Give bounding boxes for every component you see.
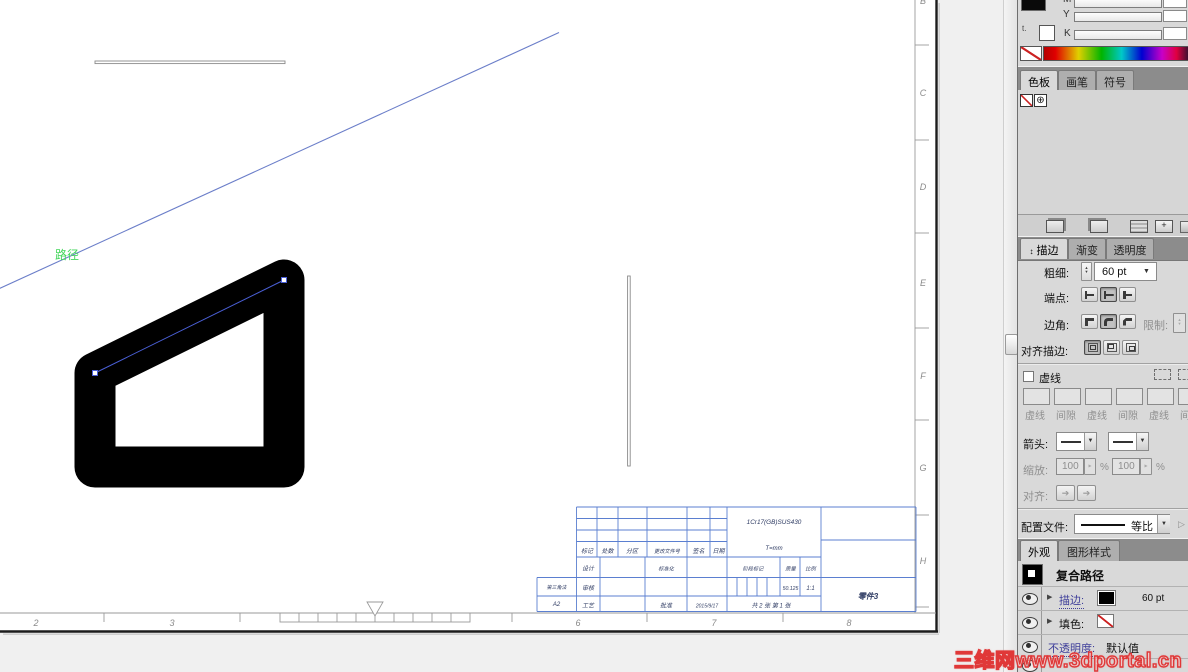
arrow-line-preview xyxy=(1061,441,1081,443)
dock-resizer-strip xyxy=(1003,0,1018,672)
tb-material: 1Cr17(GB)SUS430 xyxy=(747,519,802,526)
projecting-cap-button[interactable] xyxy=(1119,287,1136,302)
dash-caption: 虚线 xyxy=(1087,407,1107,422)
arrow-dropdown-icon[interactable]: ▼ xyxy=(1136,433,1148,450)
zone-number: 8 xyxy=(846,618,851,628)
tb-approve: 批准 xyxy=(660,602,673,610)
gap-caption: 间隙 xyxy=(1180,407,1188,422)
tb-scale: 比例 xyxy=(805,566,816,573)
panel-dock: M Y t. K 色板 画笔 符号 ⊕ + xyxy=(1017,0,1188,672)
swatch-kinds-icon[interactable] xyxy=(1090,220,1108,233)
tb-signature: 签名 xyxy=(692,547,705,555)
tb-scale-value: 1:1 xyxy=(806,586,814,592)
gap-field-2 xyxy=(1116,388,1143,405)
dashed-label: 虚线 xyxy=(1039,370,1061,386)
gap-field-3 xyxy=(1178,388,1188,405)
weight-stepper[interactable]: ▲ ▼ xyxy=(1081,262,1092,281)
color-spectrum-bar[interactable] xyxy=(1043,46,1188,61)
weight-dropdown-icon[interactable]: ▼ xyxy=(1143,268,1150,275)
tb-mass-value: 50.125 xyxy=(783,586,799,592)
tab-graphic-styles[interactable]: 图形样式 xyxy=(1058,540,1120,561)
none-color-swatch[interactable] xyxy=(1020,46,1042,61)
m-value-field[interactable] xyxy=(1163,0,1187,8)
gap-caption: 间隙 xyxy=(1056,407,1076,422)
tb-projection: 第三角法 xyxy=(546,584,567,591)
tb-mark: 标记 xyxy=(581,547,594,555)
y-slider-track[interactable] xyxy=(1074,12,1162,22)
zone-letter: F xyxy=(920,371,926,381)
tb-stage-mark: 阶段标记 xyxy=(743,566,765,573)
align-stroke-inside-button[interactable] xyxy=(1103,340,1120,355)
tb-standardize: 标准化 xyxy=(658,566,674,573)
stroke-expand-icon[interactable]: ▶ xyxy=(1047,593,1052,601)
appearance-item-title: 复合路径 xyxy=(1056,567,1104,584)
tb-review: 审核 xyxy=(582,584,595,592)
profile-value: 等比 xyxy=(1131,518,1153,534)
swatches-bottombar: + xyxy=(1018,214,1188,237)
arrow-scale-field-2: 100 xyxy=(1112,458,1140,475)
dash-field-1 xyxy=(1023,388,1050,405)
m-slider-track[interactable] xyxy=(1074,0,1162,8)
arrow-align-label: 对齐: xyxy=(1023,488,1048,504)
arrow-dropdown-icon[interactable]: ▼ xyxy=(1084,433,1096,450)
stroke-proxy[interactable] xyxy=(1039,25,1055,41)
round-cap-button[interactable] xyxy=(1100,287,1117,302)
arrow-scale-spinner-2: ▶ xyxy=(1140,458,1152,475)
arrow-scale-label: 缩放: xyxy=(1023,462,1048,478)
zone-letter: C xyxy=(920,88,927,98)
eye-icon[interactable] xyxy=(1022,617,1038,629)
appearance-stroke-link[interactable]: 描边: xyxy=(1059,592,1084,609)
zone-letter: B xyxy=(920,0,926,6)
tb-date: 2015/9/17 xyxy=(695,604,718,610)
tab-stroke-label: 描边 xyxy=(1037,245,1059,257)
miter-join-button[interactable] xyxy=(1081,314,1098,329)
arrow-end-combo[interactable]: ▼ xyxy=(1108,432,1149,451)
appearance-item-thumbnail[interactable] xyxy=(1022,564,1043,585)
gap-caption: 间隙 xyxy=(1118,407,1138,422)
artboard-paper xyxy=(0,0,936,631)
align-stroke-center-button[interactable] xyxy=(1084,340,1101,355)
preserve-dash-icon[interactable] xyxy=(1154,369,1171,380)
gap-field-1 xyxy=(1054,388,1081,405)
stroke-visibility-cell xyxy=(1018,587,1042,610)
tab-symbols[interactable]: 符号 xyxy=(1096,70,1134,91)
zone-number: 6 xyxy=(575,618,580,628)
slider-label-k: K xyxy=(1064,28,1071,39)
gray-vertical-bar-object[interactable] xyxy=(628,276,631,466)
profile-label: 配置文件: xyxy=(1021,519,1068,535)
tb-zone: 分区 xyxy=(626,548,639,555)
swatch-options-icon[interactable] xyxy=(1130,220,1148,233)
arrow-label: 箭头: xyxy=(1023,436,1048,452)
tab-gradient[interactable]: 渐变 xyxy=(1068,238,1106,259)
profile-line-preview xyxy=(1081,524,1125,526)
tab-appearance[interactable]: 外观 xyxy=(1020,540,1058,561)
arrow-scale-field-1: 100 xyxy=(1056,458,1084,475)
butt-cap-button[interactable] xyxy=(1081,287,1098,302)
tb-process: 工艺 xyxy=(582,602,595,610)
path-smart-guide-label: 路径 xyxy=(55,247,79,262)
stroke-panel-body: 粗细: ▲ ▼ 60 pt ▼ 端点: 边角: 限制: ▲ ▼ xyxy=(1018,259,1188,538)
dashed-checkbox[interactable] xyxy=(1023,371,1034,382)
zone-letter: D xyxy=(920,182,927,192)
tb-part-name: 零件3 xyxy=(858,592,879,601)
panel-advance-icon[interactable]: ▷ xyxy=(1178,519,1185,530)
anchor-point[interactable] xyxy=(93,371,98,376)
arrow-align-end-button: ➔ xyxy=(1077,485,1096,501)
arrow-start-combo[interactable]: ▼ xyxy=(1056,432,1097,451)
k-slider-track[interactable] xyxy=(1074,30,1162,40)
delete-swatch-icon[interactable] xyxy=(1180,221,1188,233)
appearance-fill-label[interactable]: 填色: xyxy=(1059,616,1084,632)
dash-field-3 xyxy=(1147,388,1174,405)
swatch-libraries-icon[interactable] xyxy=(1046,220,1064,233)
swatch-registration[interactable]: ⊕ xyxy=(1034,94,1047,107)
spin-down-icon[interactable]: ▼ xyxy=(1082,270,1091,274)
eye-icon[interactable] xyxy=(1022,593,1038,605)
limit-stepper: ▲ ▼ xyxy=(1173,313,1186,333)
slider-label-y: Y xyxy=(1063,9,1070,20)
stroke-proxy-glyph: t. xyxy=(1022,24,1026,33)
slider-label-m: M xyxy=(1063,0,1071,5)
swatch-none[interactable] xyxy=(1020,94,1033,107)
appearance-stroke-value: 60 pt xyxy=(1142,593,1164,604)
profile-combo[interactable]: 等比 ▼ xyxy=(1074,514,1170,534)
dash-field-2 xyxy=(1085,388,1112,405)
tb-date-col: 日期 xyxy=(712,548,725,555)
tb-change-no: 更改文件号 xyxy=(654,548,681,555)
tb-thickness: T=mm xyxy=(765,546,782,552)
dash-caption: 虚线 xyxy=(1149,407,1169,422)
tb-count: 处数 xyxy=(601,547,614,555)
cap-label: 端点: xyxy=(1044,290,1069,306)
percent-sign: % xyxy=(1100,462,1109,473)
color-panel: M Y t. K xyxy=(1018,0,1188,66)
canvas-area[interactable]: 2 3 6 7 8 B C D E F G H xyxy=(0,0,1003,672)
appearance-fill-swatch[interactable] xyxy=(1097,614,1114,628)
thumbnail-hole xyxy=(1028,570,1035,577)
gray-horizontal-bar-object[interactable] xyxy=(95,61,285,64)
corner-label: 边角: xyxy=(1044,317,1069,333)
adjust-dash-icon[interactable] xyxy=(1178,369,1188,380)
tb-mass: 质量 xyxy=(785,566,796,573)
percent-sign: % xyxy=(1156,462,1165,473)
y-value-field[interactable] xyxy=(1163,10,1187,22)
weight-combo[interactable]: 60 pt ▼ xyxy=(1094,262,1157,281)
tab-swatches[interactable]: 色板 xyxy=(1020,70,1058,91)
tb-design: 设计 xyxy=(582,565,595,573)
profile-dropdown-icon[interactable]: ▼ xyxy=(1157,515,1170,533)
panel-toggle-icon: ↕ xyxy=(1029,247,1033,256)
fill-expand-icon[interactable]: ▶ xyxy=(1047,617,1052,625)
weight-label: 粗细: xyxy=(1044,265,1069,281)
dash-caption: 虚线 xyxy=(1025,407,1045,422)
zone-letter: H xyxy=(920,556,927,566)
arrow-line-preview xyxy=(1113,441,1133,443)
new-swatch-icon[interactable]: + xyxy=(1155,220,1173,233)
appearance-stroke-swatch[interactable] xyxy=(1097,590,1116,606)
round-join-button[interactable] xyxy=(1100,314,1117,329)
tab-transparency[interactable]: 透明度 xyxy=(1106,238,1154,259)
illustrator-window: 2 3 6 7 8 B C D E F G H xyxy=(0,0,1188,672)
align-stroke-outside-button[interactable] xyxy=(1122,340,1139,355)
bevel-join-button[interactable] xyxy=(1119,314,1136,329)
arrow-align-tip-button: ➔ xyxy=(1056,485,1075,501)
zone-number: 3 xyxy=(169,618,174,628)
align-stroke-label: 对齐描边: xyxy=(1021,343,1068,359)
weight-value: 60 pt xyxy=(1102,266,1126,278)
watermark: 三维网www.3dportal.cn xyxy=(954,644,1182,672)
zone-number: 2 xyxy=(32,618,38,628)
tb-sheet-size: A2 xyxy=(552,602,561,608)
spin-down-icon: ▼ xyxy=(1174,322,1185,326)
anchor-point[interactable] xyxy=(282,278,287,283)
fill-visibility-cell xyxy=(1018,611,1042,634)
limit-label: 限制: xyxy=(1143,317,1168,333)
k-value-field[interactable] xyxy=(1163,27,1187,40)
zone-letter: G xyxy=(919,463,926,473)
fill-proxy[interactable] xyxy=(1021,0,1046,11)
zone-letter: E xyxy=(920,278,927,288)
tb-sheets: 共 2 张 第 1 张 xyxy=(751,602,791,610)
swatches-body: ⊕ xyxy=(1018,90,1188,214)
arrow-scale-spinner-1: ▶ xyxy=(1084,458,1096,475)
tab-brushes[interactable]: 画笔 xyxy=(1058,70,1096,91)
tab-stroke[interactable]: ↕ 描边 xyxy=(1020,238,1068,259)
